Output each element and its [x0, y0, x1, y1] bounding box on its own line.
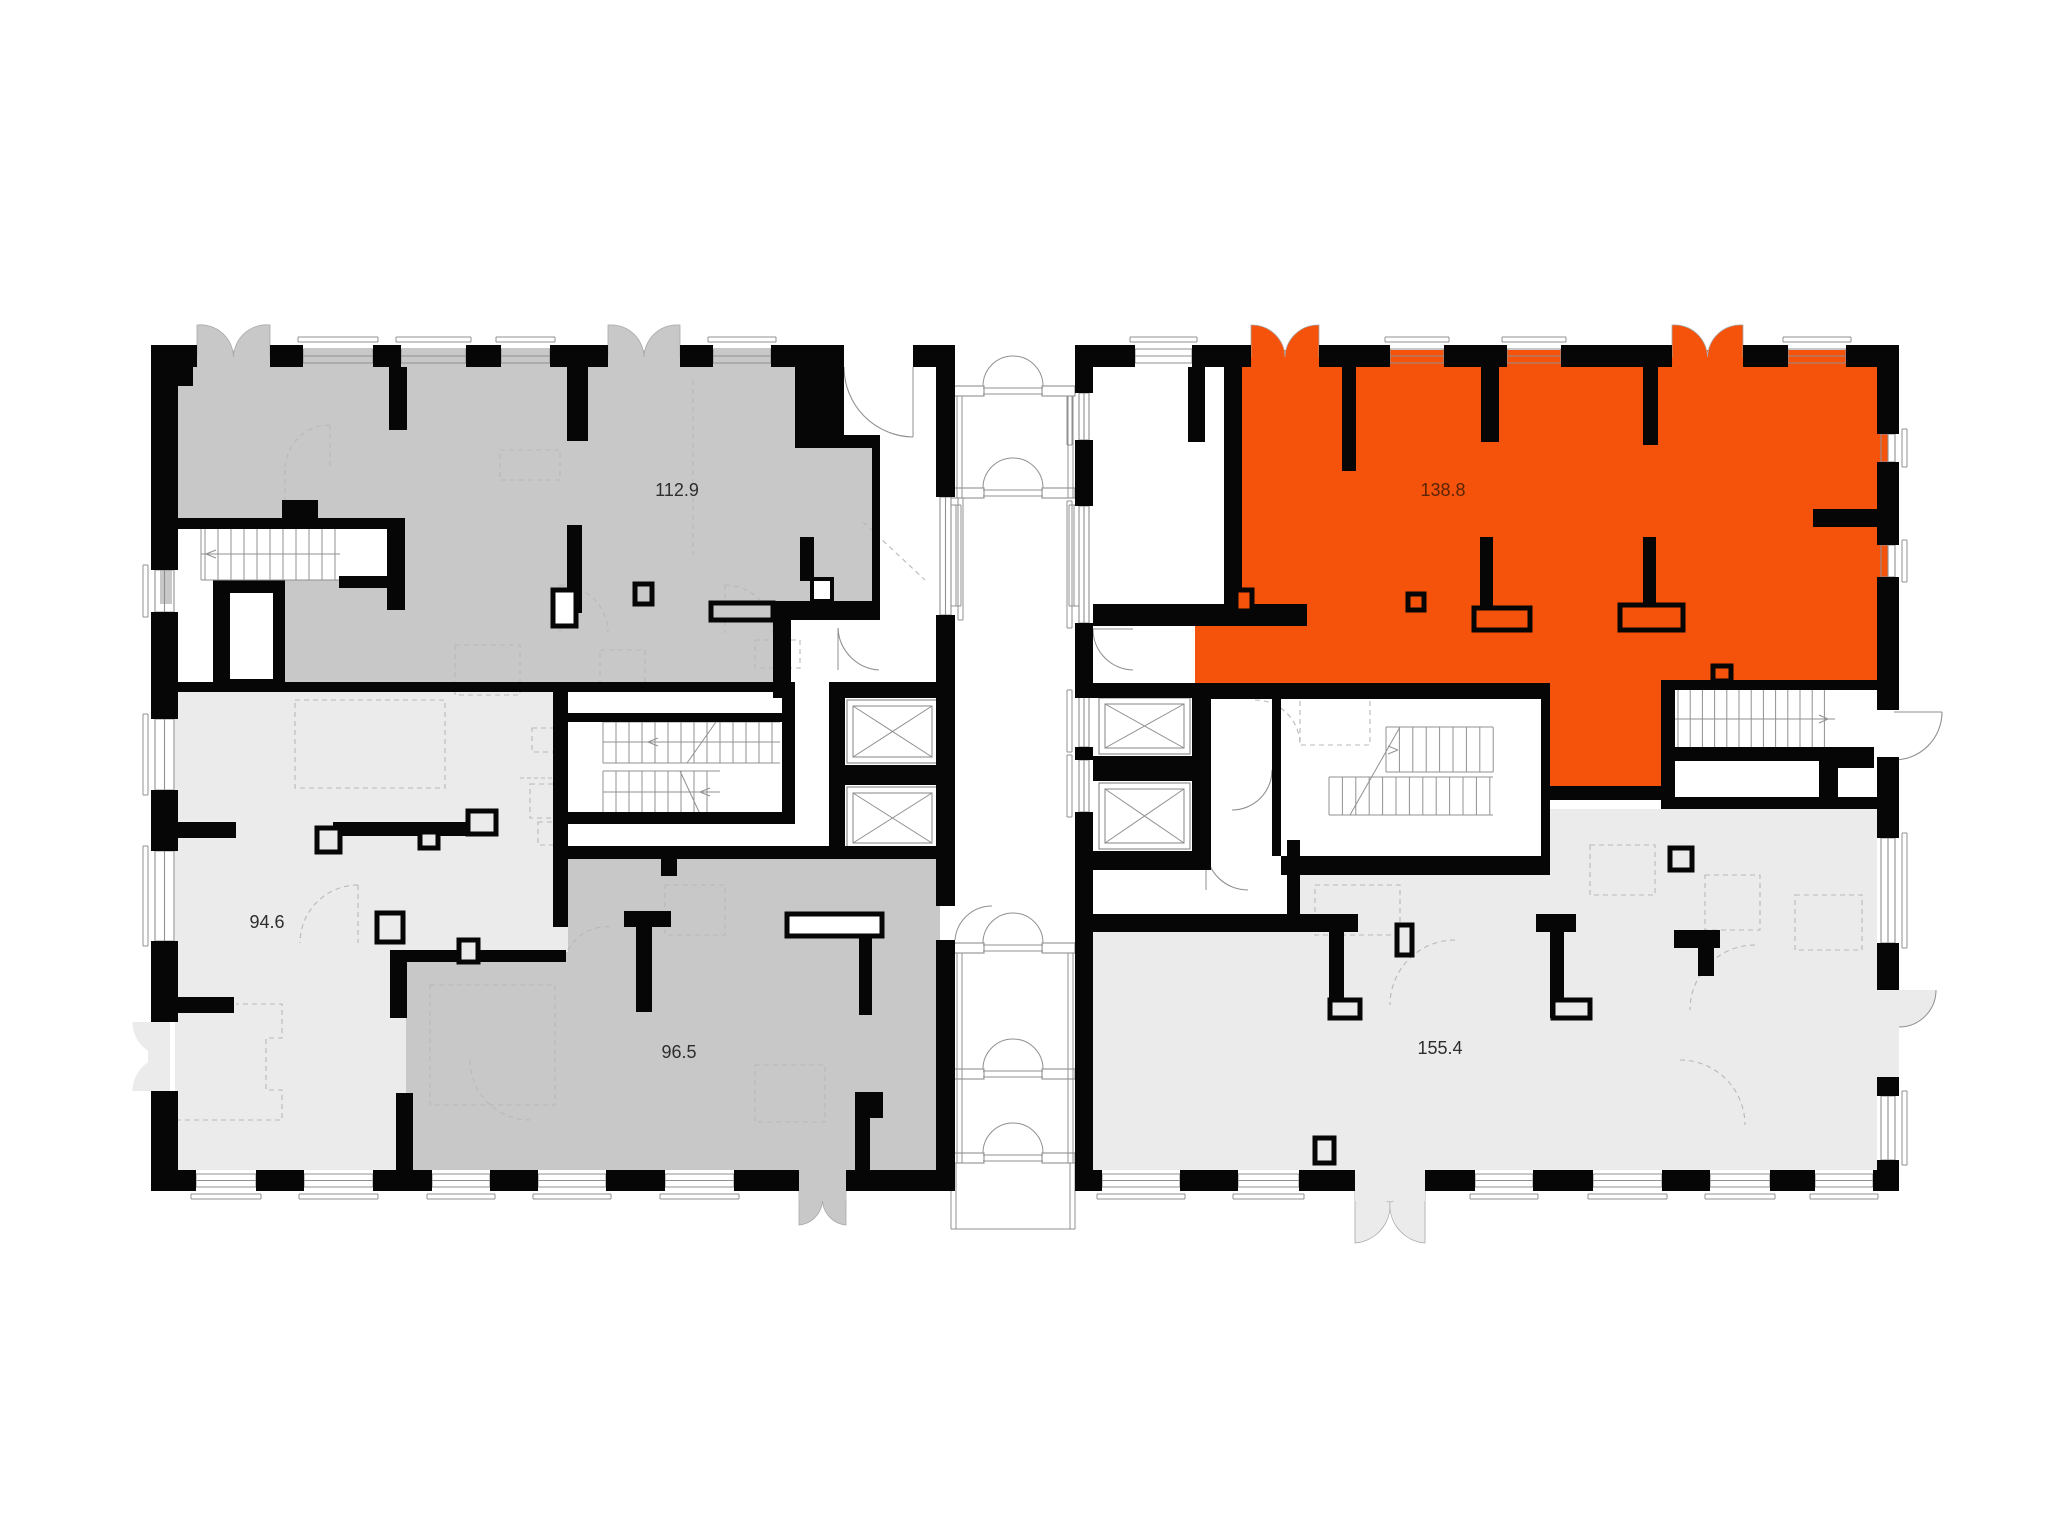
svg-text:138.8: 138.8: [1420, 480, 1465, 500]
svg-text:112.9: 112.9: [655, 480, 699, 500]
svg-text:94.6: 94.6: [249, 912, 284, 932]
svg-text:96.5: 96.5: [661, 1042, 696, 1062]
svg-text:155.4: 155.4: [1417, 1038, 1462, 1058]
